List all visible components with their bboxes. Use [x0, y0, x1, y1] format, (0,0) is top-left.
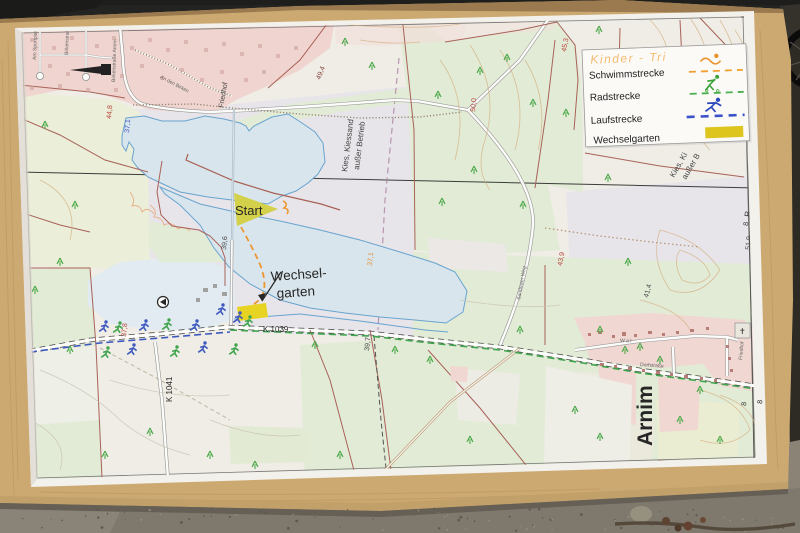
svg-text:Kinder - Tri: Kinder - Tri	[590, 50, 667, 67]
svg-text:Radstrecke: Radstrecke	[590, 91, 641, 104]
svg-text:8: 8	[757, 400, 764, 405]
svg-text:Laufstrecke: Laufstrecke	[591, 114, 644, 127]
